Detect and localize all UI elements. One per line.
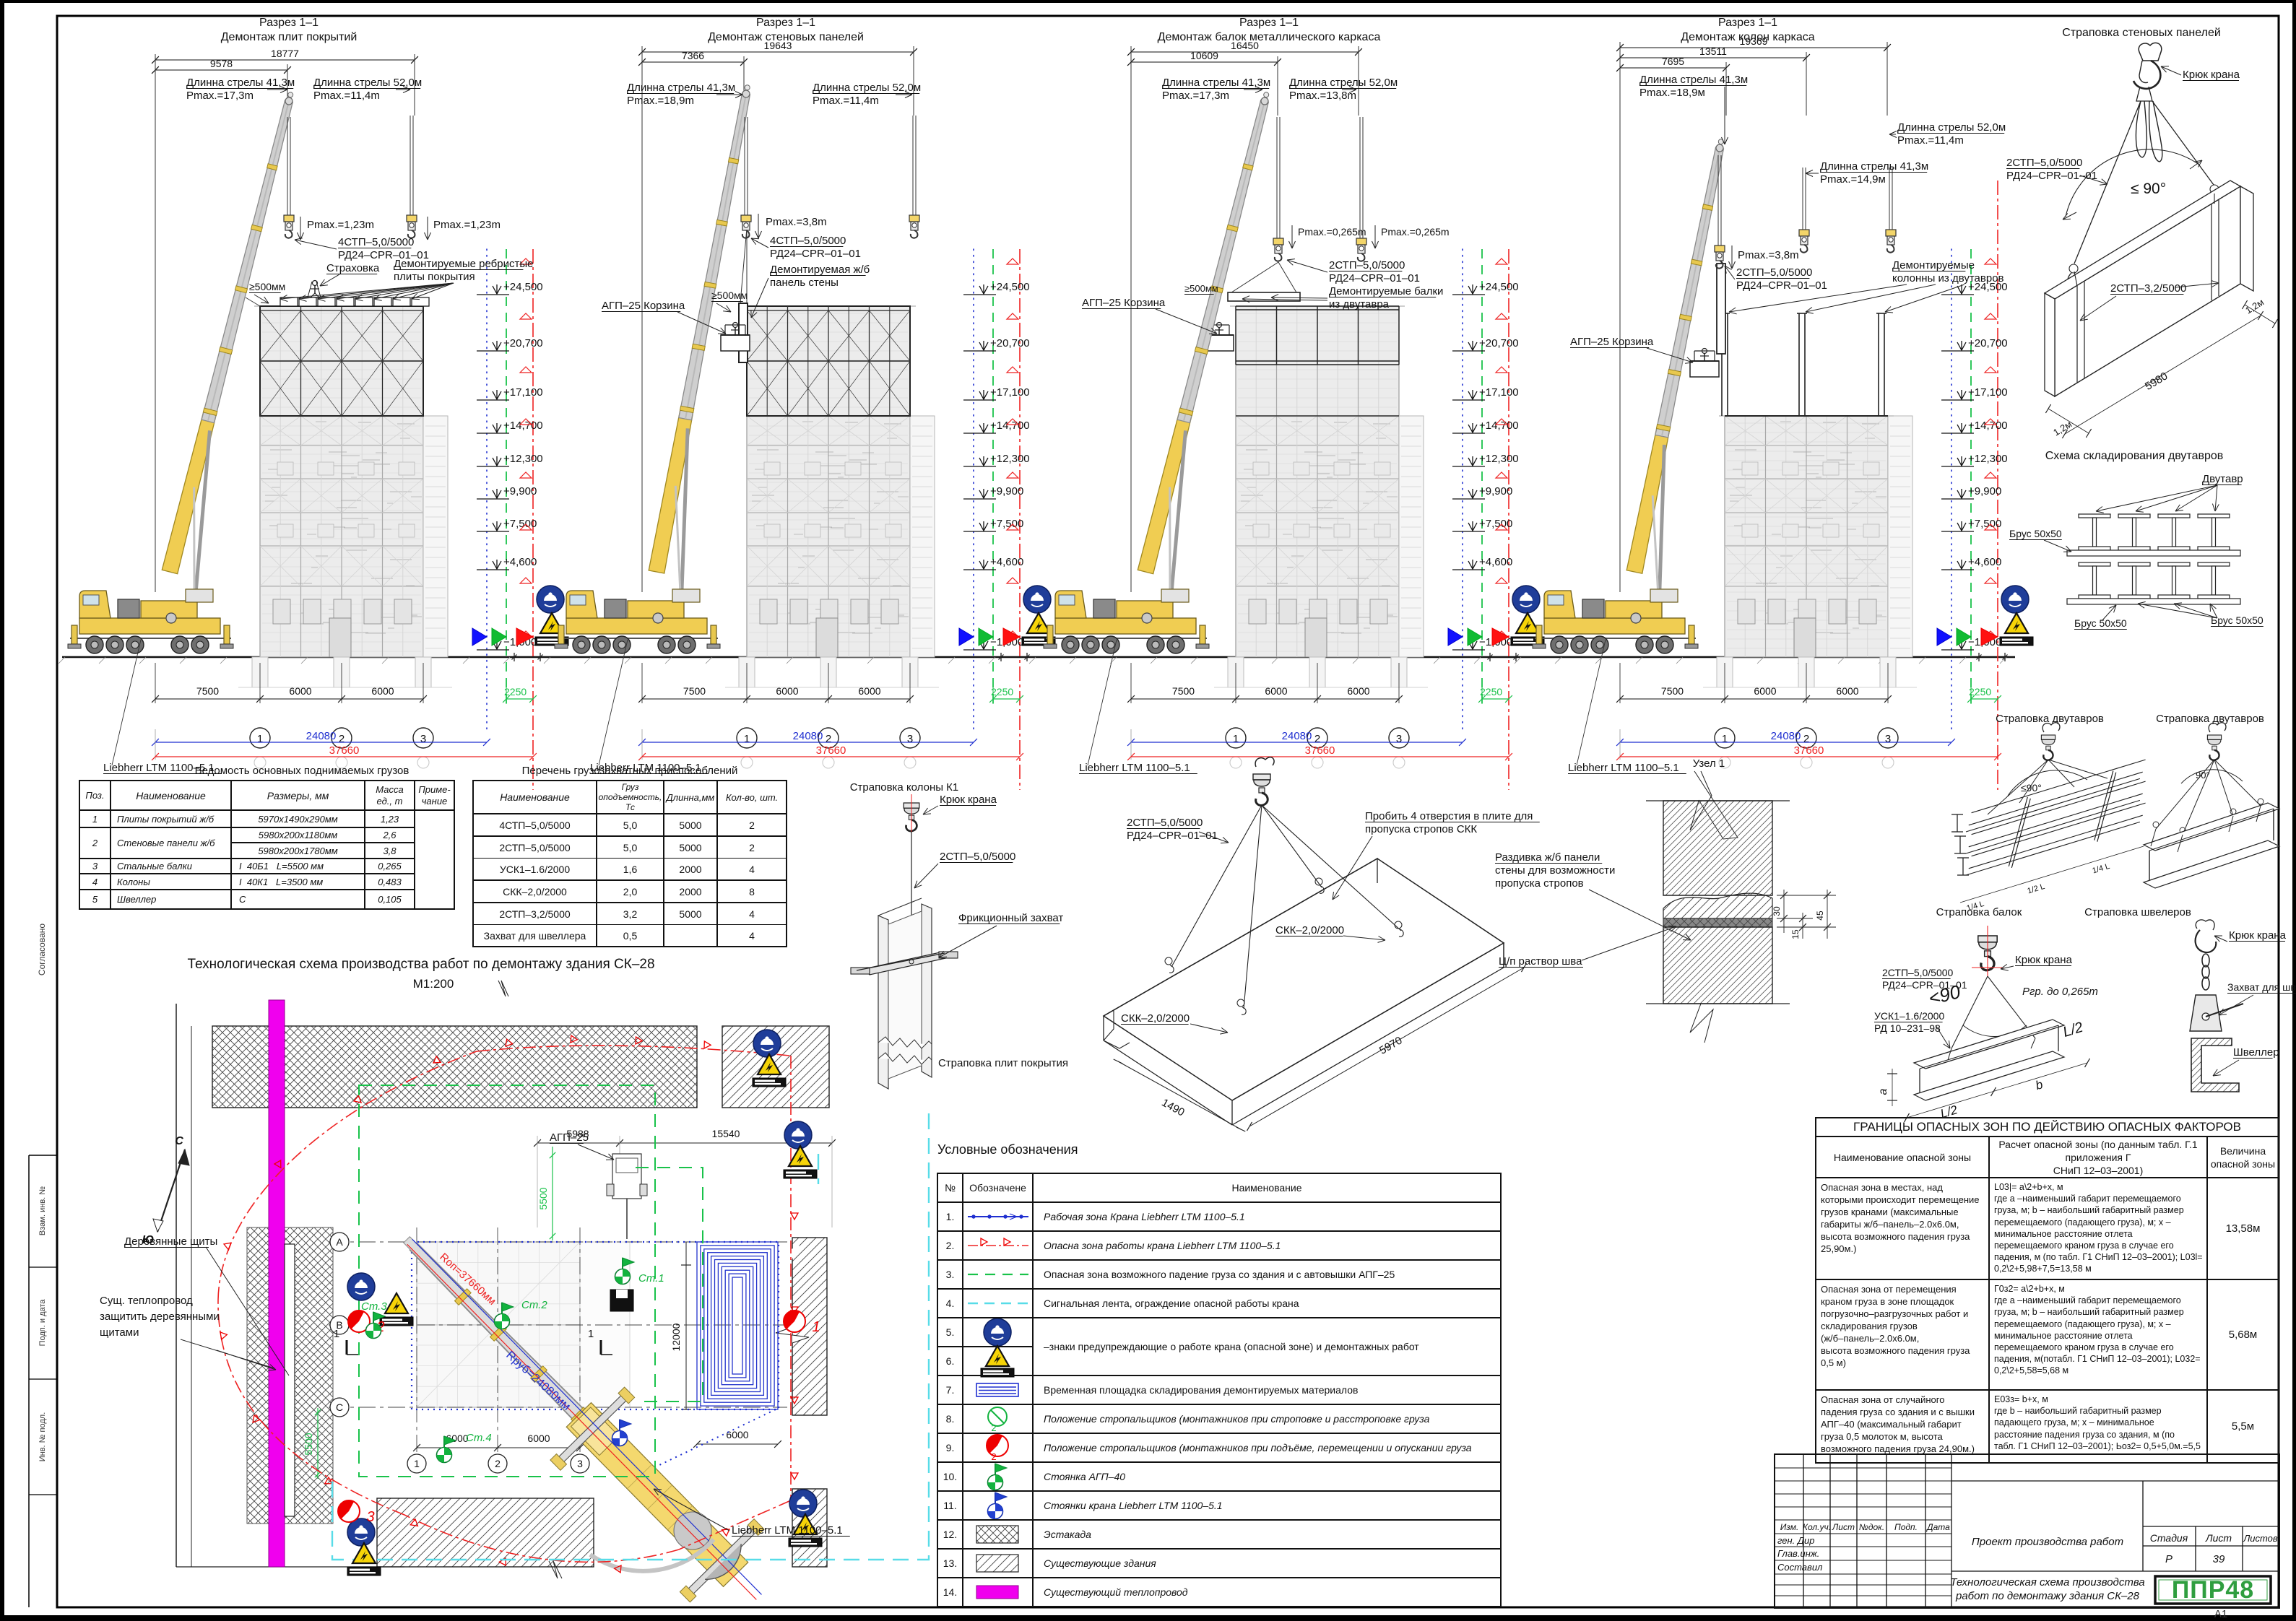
svg-text:Схема складирования двутавров: Схема складирования двутавров xyxy=(2045,450,2224,462)
svg-text:Ст.1: Ст.1 xyxy=(638,1272,664,1285)
svg-text:Pmax.=13,8m: Pmax.=13,8m xyxy=(1289,90,1356,102)
svg-text:19643: 19643 xyxy=(764,40,792,51)
svg-text:Захват для швеллера: Захват для швеллера xyxy=(2227,981,2296,993)
svg-text:+12,300: +12,300 xyxy=(990,453,1030,465)
svg-text:Разрез 1–1: Разрез 1–1 xyxy=(1718,17,1777,29)
svg-text:Разрез 1–1: Разрез 1–1 xyxy=(756,17,815,29)
svg-text:4СТП–5,0/5000: 4СТП–5,0/5000 xyxy=(770,235,846,247)
svg-text:Демонтируемые: Демонтируемые xyxy=(1892,259,1975,271)
svg-text:РД24–CPR–01–01: РД24–CPR–01–01 xyxy=(1127,830,1218,842)
svg-text:37660: 37660 xyxy=(1794,744,1824,757)
svg-text:+20,700: +20,700 xyxy=(1968,337,2008,349)
svg-text:Раздивка ж/б панели: Раздивка ж/б панели xyxy=(1495,851,1600,864)
svg-text:Ст.2: Ст.2 xyxy=(521,1299,547,1311)
svg-text:3: 3 xyxy=(907,733,913,745)
svg-text:1: 1 xyxy=(414,1458,420,1469)
svg-text:≤ 90°: ≤ 90° xyxy=(2131,181,2166,197)
svg-text:Технологическая схема производ: Технологическая схема производства работ… xyxy=(187,957,654,972)
svg-text:Демонтаж плит покрытий: Демонтаж плит покрытий xyxy=(221,31,358,43)
svg-text:15540: 15540 xyxy=(712,1128,740,1139)
svg-text:Условные обозначения: Условные обозначения xyxy=(937,1142,1078,1157)
svg-text:СКК–2,0/2000: СКК–2,0/2000 xyxy=(1275,924,1344,936)
svg-text:2СТП–5,0/5000: 2СТП–5,0/5000 xyxy=(1127,817,1203,829)
svg-text:щитами: щитами xyxy=(100,1326,139,1339)
svg-text:6000: 6000 xyxy=(726,1429,748,1440)
svg-text:Разрез 1–1: Разрез 1–1 xyxy=(259,17,319,29)
svg-text:2: 2 xyxy=(1314,733,1320,745)
svg-text:РД24–CPR–01–01: РД24–CPR–01–01 xyxy=(2006,170,2097,182)
svg-text:Ргр. до 0,265т: Ргр. до 0,265т xyxy=(2022,986,2098,998)
svg-text:2250: 2250 xyxy=(504,686,527,697)
svg-text:Ведомость основных поднимаемых: Ведомость основных поднимаемых грузов xyxy=(195,765,410,777)
svg-text:7500: 7500 xyxy=(196,685,219,697)
svg-text:Длинна стрелы 52,0м: Длинна стрелы 52,0м xyxy=(813,82,921,94)
svg-text:45: 45 xyxy=(1815,911,1825,921)
svg-text:Длинна стрелы 41,3м: Длинна стрелы 41,3м xyxy=(1162,77,1270,89)
svg-text:Страповка стеновых панелей: Страповка стеновых панелей xyxy=(2062,27,2221,39)
svg-text:1: 1 xyxy=(1233,733,1239,745)
svg-text:4СТП–5,0/5000: 4СТП–5,0/5000 xyxy=(338,236,414,248)
svg-text:24080: 24080 xyxy=(306,730,337,742)
svg-text:≥500мм: ≥500мм xyxy=(1184,283,1218,294)
svg-text:Страповка плит покрытия: Страповка плит покрытия xyxy=(938,1057,1068,1069)
svg-text:Инв. № подл.: Инв. № подл. xyxy=(38,1412,47,1462)
svg-text:7500: 7500 xyxy=(1661,685,1684,697)
svg-text:Узел 1: Узел 1 xyxy=(1693,757,1725,770)
svg-text:Страховка: Страховка xyxy=(326,262,380,274)
svg-text:37660: 37660 xyxy=(329,744,360,757)
svg-text:защитить деревянными: защитить деревянными xyxy=(100,1311,220,1323)
svg-text:1: 1 xyxy=(588,1328,594,1340)
svg-text:2: 2 xyxy=(339,733,345,745)
svg-text:Демонтируемые балки: Демонтируемые балки xyxy=(1329,285,1443,297)
svg-text:панель стены: панель стены xyxy=(770,277,839,289)
svg-text:Деревянные щиты: Деревянные щиты xyxy=(124,1235,217,1248)
svg-text:плиты покрытия: плиты покрытия xyxy=(394,271,475,283)
svg-text:≥500мм: ≥500мм xyxy=(249,281,285,292)
svg-text:3: 3 xyxy=(1396,733,1402,745)
svg-text:2СТП–5,0/5000: 2СТП–5,0/5000 xyxy=(1882,967,1954,978)
svg-text:Pmax.=11,4m: Pmax.=11,4m xyxy=(813,95,879,107)
svg-text:6000: 6000 xyxy=(1265,685,1287,697)
svg-text:30: 30 xyxy=(1772,906,1782,916)
svg-text:≤90°: ≤90° xyxy=(2021,782,2042,794)
svg-text:2: 2 xyxy=(826,733,831,745)
svg-text:Pmax.=17,3m: Pmax.=17,3m xyxy=(186,90,254,102)
svg-text:Длинна стрелы 41,3м: Длинна стрелы 41,3м xyxy=(627,82,735,94)
svg-text:+24,500: +24,500 xyxy=(990,281,1030,293)
svg-text:+20,700: +20,700 xyxy=(990,337,1030,349)
svg-text:+24,500: +24,500 xyxy=(503,281,543,293)
svg-text:АГП–25 Корзина: АГП–25 Корзина xyxy=(1082,297,1166,309)
svg-text:Перечень грузозахватных приспо: Перечень грузозахватных приспособлений xyxy=(522,765,738,777)
svg-text:6000: 6000 xyxy=(1347,685,1369,697)
svg-text:+12,300: +12,300 xyxy=(1479,453,1519,465)
svg-text:Крюк крана: Крюк крана xyxy=(940,794,997,806)
svg-text:Сущ. теплопровод: Сущ. теплопровод xyxy=(100,1295,193,1307)
svg-text:≥500мм: ≥500мм xyxy=(711,290,748,301)
svg-text:Pmax.=1,23m: Pmax.=1,23m xyxy=(433,219,501,231)
svg-text:+7,500: +7,500 xyxy=(1479,518,1512,530)
svg-text:+9,900: +9,900 xyxy=(1968,485,2001,497)
svg-text:+17,100: +17,100 xyxy=(503,386,543,399)
svg-text:Страповка двутавров: Страповка двутавров xyxy=(2156,713,2264,725)
svg-text:+20,700: +20,700 xyxy=(1479,337,1519,349)
svg-text:a: a xyxy=(1877,1088,1889,1095)
svg-text:+12,300: +12,300 xyxy=(1968,453,2008,465)
svg-text:Крюк крана: Крюк крана xyxy=(2183,69,2240,81)
svg-text:Крюк крана: Крюк крана xyxy=(2229,929,2287,942)
svg-text:18777: 18777 xyxy=(271,48,299,59)
svg-text:РД24–CPR–01–01: РД24–CPR–01–01 xyxy=(1736,279,1827,292)
svg-text:Pmax.=3,8m: Pmax.=3,8m xyxy=(1738,249,1799,261)
svg-text:+24,500: +24,500 xyxy=(1479,281,1519,293)
svg-text:+7,500: +7,500 xyxy=(503,518,537,530)
svg-text:6000: 6000 xyxy=(371,685,394,697)
svg-text:+17,100: +17,100 xyxy=(1479,386,1519,399)
svg-text:19369: 19369 xyxy=(1740,35,1768,47)
svg-text:+17,100: +17,100 xyxy=(1968,386,2008,399)
svg-text:Pmax.=3,8m: Pmax.=3,8m xyxy=(766,216,827,228)
svg-text:Ю: Ю xyxy=(142,1234,155,1246)
svg-text:24080: 24080 xyxy=(793,730,823,742)
svg-text:Пробить 4 отверстия в плите дл: Пробить 4 отверстия в плите для xyxy=(1365,810,1533,822)
svg-text:6000: 6000 xyxy=(1754,685,1776,697)
svg-text:Pmax.=14,9м: Pmax.=14,9м xyxy=(1820,173,1886,186)
svg-text:6000: 6000 xyxy=(1836,685,1858,697)
svg-text:Ст.4: Ст.4 xyxy=(466,1432,492,1444)
svg-text:A: A xyxy=(336,1236,343,1248)
svg-text:Длинна стрелы 52,0м: Длинна стрелы 52,0м xyxy=(313,77,422,89)
svg-text:2: 2 xyxy=(495,1458,501,1469)
svg-text:Страповка колоны К1: Страповка колоны К1 xyxy=(850,781,959,794)
svg-text:1: 1 xyxy=(257,733,263,745)
svg-text:АГП–25 Корзина: АГП–25 Корзина xyxy=(1570,336,1654,348)
svg-text:С: С xyxy=(175,1135,183,1147)
svg-text:90°: 90° xyxy=(2196,770,2210,781)
svg-text:3: 3 xyxy=(366,1509,374,1525)
svg-text:РД24–CPR–01–01: РД24–CPR–01–01 xyxy=(770,248,861,260)
svg-text:2СТП–5,0/5000: 2СТП–5,0/5000 xyxy=(2006,157,2082,169)
svg-text:Двутавр: Двутавр xyxy=(2202,473,2243,485)
svg-text:5500: 5500 xyxy=(537,1187,549,1209)
svg-text:1: 1 xyxy=(812,1319,820,1335)
svg-text:2СТП–5,0/5000: 2СТП–5,0/5000 xyxy=(1736,266,1812,279)
svg-text:Pmax.=11,4m: Pmax.=11,4m xyxy=(313,90,380,102)
svg-text:15: 15 xyxy=(1790,929,1801,939)
svg-text:+17,100: +17,100 xyxy=(990,386,1030,399)
svg-text:Крюк крана: Крюк крана xyxy=(2015,954,2073,966)
svg-text:Демонтаж балок металлического: Демонтаж балок металлического каркаса xyxy=(1158,31,1381,43)
svg-text:СКК–2,0/2000: СКК–2,0/2000 xyxy=(1121,1012,1190,1025)
svg-text:12000: 12000 xyxy=(670,1323,682,1351)
svg-text:Длинна стрелы 52,0м: Длинна стрелы 52,0м xyxy=(1289,77,1398,89)
svg-text:Длинна стрелы 41,3м: Длинна стрелы 41,3м xyxy=(1639,74,1748,86)
svg-text:из двутавра: из двутавра xyxy=(1329,298,1390,310)
svg-text:АГП–25 Корзина: АГП–25 Корзина xyxy=(602,300,685,312)
svg-text:АГП–25: АГП–25 xyxy=(550,1131,589,1144)
svg-text:1: 1 xyxy=(744,733,750,745)
svg-text:6000: 6000 xyxy=(858,685,880,697)
svg-text:Страповка двутавров: Страповка двутавров xyxy=(1996,713,2104,725)
svg-text:2250: 2250 xyxy=(1480,686,1502,697)
svg-text:13511: 13511 xyxy=(1699,45,1727,57)
svg-text:Длинна стрелы 41,3м: Длинна стрелы 41,3м xyxy=(186,77,295,89)
svg-text:37660: 37660 xyxy=(1305,744,1335,757)
svg-text:3: 3 xyxy=(420,733,426,745)
svg-text:РД24–CPR–01–01: РД24–CPR–01–01 xyxy=(1329,272,1420,284)
svg-text:6000: 6000 xyxy=(527,1433,550,1444)
svg-text:Страповка балок: Страповка балок xyxy=(1936,906,2022,918)
svg-text:+4,600: +4,600 xyxy=(1968,556,2001,568)
svg-text:Брус 50x50: Брус 50x50 xyxy=(2211,614,2263,626)
svg-text:А1: А1 xyxy=(2214,1608,2227,1620)
svg-text:Длинна стрелы 52,0м: Длинна стрелы 52,0м xyxy=(1897,121,2006,134)
svg-text:Демонтируемая ж/б: Демонтируемая ж/б xyxy=(770,264,870,276)
svg-text:Pmax.=11,4m: Pmax.=11,4m xyxy=(1897,134,1964,147)
svg-text:Согласовано: Согласовано xyxy=(37,924,47,975)
svg-text:УСК1–1.6/2000: УСК1–1.6/2000 xyxy=(1874,1010,1944,1022)
svg-text:Pmax.=18,9m: Pmax.=18,9m xyxy=(627,95,694,107)
svg-text:+7,500: +7,500 xyxy=(990,518,1023,530)
svg-text:7366: 7366 xyxy=(682,50,704,61)
svg-text:1: 1 xyxy=(1722,733,1728,745)
svg-text:Демонтируемые ребристые: Демонтируемые ребристые xyxy=(394,258,533,270)
svg-text:3: 3 xyxy=(577,1458,583,1469)
svg-text:2СТП–5,0/5000: 2СТП–5,0/5000 xyxy=(1329,259,1405,271)
svg-text:Взам. инв. №: Взам. инв. № xyxy=(38,1186,47,1235)
svg-text:Ц/п раствор шва: Ц/п раствор шва xyxy=(1499,955,1582,968)
svg-text:3: 3 xyxy=(1885,733,1891,745)
svg-text:Разрез 1–1: Разрез 1–1 xyxy=(1239,17,1299,29)
svg-text:24080: 24080 xyxy=(1282,730,1312,742)
svg-text:37660: 37660 xyxy=(816,744,846,757)
svg-text:Liebherr LTM 1100–5.1: Liebherr LTM 1100–5.1 xyxy=(732,1524,843,1537)
svg-text:+9,900: +9,900 xyxy=(990,485,1023,497)
svg-text:+9,900: +9,900 xyxy=(503,485,537,497)
svg-text:1: 1 xyxy=(334,1328,339,1340)
svg-text:Pmax.=0,265m: Pmax.=0,265m xyxy=(1381,226,1450,238)
svg-text:Liebherr LTM 1100–5.1: Liebherr LTM 1100–5.1 xyxy=(1079,762,1190,774)
svg-text:Pmax.=1,23m: Pmax.=1,23m xyxy=(307,219,374,231)
svg-text:6000: 6000 xyxy=(289,685,311,697)
svg-text:М1:200: М1:200 xyxy=(413,977,454,991)
svg-text:+12,300: +12,300 xyxy=(503,453,543,465)
svg-text:Подп. и дата: Подп. и дата xyxy=(38,1299,47,1347)
svg-text:Pmax.=18,9м: Pmax.=18,9м xyxy=(1639,87,1705,99)
svg-text:колонны из двутавров: колонны из двутавров xyxy=(1892,272,2004,284)
svg-text:9578: 9578 xyxy=(210,58,233,69)
svg-text:стены для возможности: стены для возможности xyxy=(1495,864,1615,877)
svg-text:+20,700: +20,700 xyxy=(503,337,543,349)
svg-text:7695: 7695 xyxy=(1662,56,1684,67)
svg-text:24080: 24080 xyxy=(1771,730,1801,742)
svg-text:2СТП–3,2/5000: 2СТП–3,2/5000 xyxy=(2110,282,2186,295)
svg-text:16450: 16450 xyxy=(1231,40,1259,51)
svg-text:пропуска стропов: пропуска стропов xyxy=(1495,877,1584,890)
svg-text:Ст.3: Ст.3 xyxy=(361,1300,387,1313)
svg-text:5500: 5500 xyxy=(303,1433,314,1455)
svg-text:2: 2 xyxy=(1803,733,1809,745)
svg-text:+7,500: +7,500 xyxy=(1968,518,2001,530)
svg-text:2250: 2250 xyxy=(1969,686,1991,697)
svg-text:Liebherr LTM 1100–5.1: Liebherr LTM 1100–5.1 xyxy=(1568,762,1679,774)
svg-text:Швеллер: Швеллер xyxy=(2233,1046,2279,1059)
svg-text:2СТП–5,0/5000: 2СТП–5,0/5000 xyxy=(940,851,1015,863)
svg-text:Pmax.=17,3m: Pmax.=17,3m xyxy=(1162,90,1229,102)
svg-text:2250: 2250 xyxy=(991,686,1013,697)
svg-text:10609: 10609 xyxy=(1190,50,1218,61)
svg-text:+4,600: +4,600 xyxy=(1479,556,1512,568)
svg-text:7500: 7500 xyxy=(683,685,706,697)
svg-text:Брус 50x50: Брус 50x50 xyxy=(2009,528,2062,539)
svg-text:Страповка швелеров: Страповка швелеров xyxy=(2084,906,2191,918)
svg-text:пропуска стропов СКК: пропуска стропов СКК xyxy=(1365,823,1477,835)
svg-text:+4,600: +4,600 xyxy=(990,556,1023,568)
svg-text:Pmax.=0,265m: Pmax.=0,265m xyxy=(1298,226,1366,238)
svg-text:Фрикционный захват: Фрикционный захват xyxy=(958,912,1063,924)
svg-text:6000: 6000 xyxy=(776,685,798,697)
svg-text:+4,600: +4,600 xyxy=(503,556,537,568)
svg-text:РД 10–231–98: РД 10–231–98 xyxy=(1874,1022,1941,1034)
svg-text:Брус 50x50: Брус 50x50 xyxy=(2074,617,2127,629)
svg-text:7500: 7500 xyxy=(1172,685,1195,697)
svg-text:+9,900: +9,900 xyxy=(1479,485,1512,497)
svg-text:Длинна стрелы 41,3м: Длинна стрелы 41,3м xyxy=(1820,160,1928,173)
svg-text:C: C xyxy=(336,1401,343,1413)
